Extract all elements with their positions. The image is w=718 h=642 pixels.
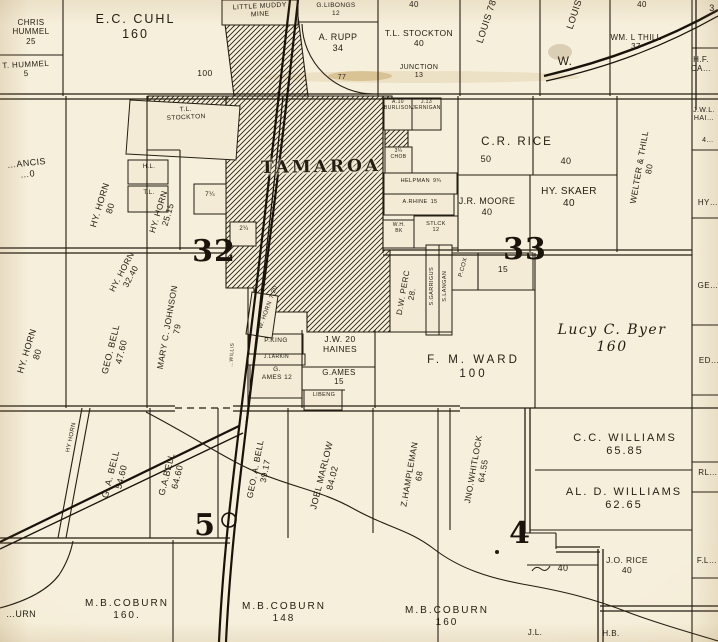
label-ed-partial: ED… (697, 356, 718, 365)
label-box-2q: 2¼ (232, 226, 256, 233)
label-cox-15: 15 (490, 264, 516, 274)
label-tamaroa-town: TAMAROA (246, 156, 396, 179)
label-chob: 3¼CHOB (386, 149, 411, 161)
label-rupp-77: 77 (330, 74, 354, 82)
label-jwl-4: 4… (698, 137, 718, 145)
label-s-garrigus: S.GARRIGUS (429, 251, 435, 321)
label-cc-williams: C.C. WILLIAMS65.85 (545, 432, 705, 458)
label-libeng: LIBENG (305, 392, 343, 398)
label-g-ames-12: G.AMES 12 (252, 366, 302, 381)
label-rl-partial: RL… (697, 468, 718, 477)
label-wm-l-thill: WM. L THILL37 (609, 33, 663, 52)
label-hy-skaer: HY. SKAER40 (530, 186, 608, 210)
label-forty-creek: 40 (548, 563, 578, 574)
label-t-hummel: T. HUMMEL5 (0, 59, 52, 81)
label-p-king: P.KING (250, 337, 302, 345)
section-number-33: 33 (494, 232, 556, 267)
label-jernigan: J.13JERNIGAN (412, 100, 441, 112)
label-forty-top-2: 40 (630, 0, 654, 9)
label-coburn-1: M.B.COBURN160. (68, 598, 186, 622)
label-fl-partial: F.L… (694, 556, 718, 565)
label-cuhl-100: 100 (190, 68, 220, 78)
label-stlck: STLCK12 (414, 221, 458, 234)
label-three-top: 3 (705, 3, 718, 14)
label-tl-stockton: T.L. STOCKTON40 (381, 28, 457, 48)
label-tl-box: T.L. (131, 190, 167, 197)
label-whbk: W.H.BK (384, 223, 414, 235)
label-jw-haines: J.W. 20HAINES (304, 334, 376, 354)
label-jr-moore: J.R. MOORE40 (455, 196, 519, 217)
label-g-libongs: G.LIBONGS12 (299, 2, 373, 17)
map-linework (0, 0, 718, 642)
label-jo-rice: J.O. RICE40 (600, 555, 654, 575)
label-w-initial: W. (548, 54, 582, 68)
label-ec-cuhl: E.C. CUHL160 (78, 12, 193, 42)
section-number-5: 5 (190, 508, 220, 543)
label-coburn-3: M.B.COBURN160 (386, 605, 508, 629)
label-hy-partial: HY… (696, 198, 718, 207)
label-hb-partial: H.B. (598, 629, 624, 638)
label-fm-ward: F. M. WARD100 (396, 354, 551, 381)
label-forty-top-1: 40 (402, 0, 426, 9)
label-hf-ca: H.F.CA… (684, 55, 718, 74)
section-number-4: 4 (502, 516, 538, 551)
label-urn-partial: …URN (0, 609, 42, 620)
label-hl-box: H.L. (131, 164, 167, 171)
label-s-langan: S.LANGAN (442, 251, 448, 321)
label-al-d-williams: AL. D. WILLIAMS62.65 (540, 486, 708, 512)
survey-dot (495, 550, 499, 554)
label-g-ames-15: G.AMES15 (305, 368, 373, 387)
label-a-rupp: A. RUPP34 (313, 32, 363, 53)
label-cr-rice: C.R. RICE (462, 136, 572, 150)
label-rice-50: 50 (472, 154, 500, 165)
plat-map-canvas: CHRIS HUMMEL25 T. HUMMEL5 E.C. CUHL160 1… (0, 0, 718, 642)
label-helpman: HELPMAN9¾ (385, 178, 457, 184)
label-a-rhine: A.RHINE15 (385, 199, 455, 205)
label-j-larkin: J.LARKIN (249, 355, 304, 361)
small-hatch-strip (385, 130, 408, 147)
label-rice-40: 40 (552, 156, 580, 167)
label-ge-partial: GE… (697, 281, 718, 290)
label-burlison: A.10BURLISON (384, 100, 412, 112)
label-box-7q: 7¼ (196, 191, 224, 199)
label-lucy-byer: Lucy C. Byer160 (542, 322, 682, 355)
label-chris-hummel: CHRIS HUMMEL25 (2, 18, 60, 46)
label-jwl-hai: J.W.L.HAI… (690, 107, 718, 124)
label-coburn-2: M.B.COBURN148 (224, 601, 344, 625)
label-jl-partial: J.L. (523, 628, 547, 637)
section-number-32: 32 (190, 234, 238, 269)
label-stockton-junction: JUNCTION13 (383, 64, 455, 81)
